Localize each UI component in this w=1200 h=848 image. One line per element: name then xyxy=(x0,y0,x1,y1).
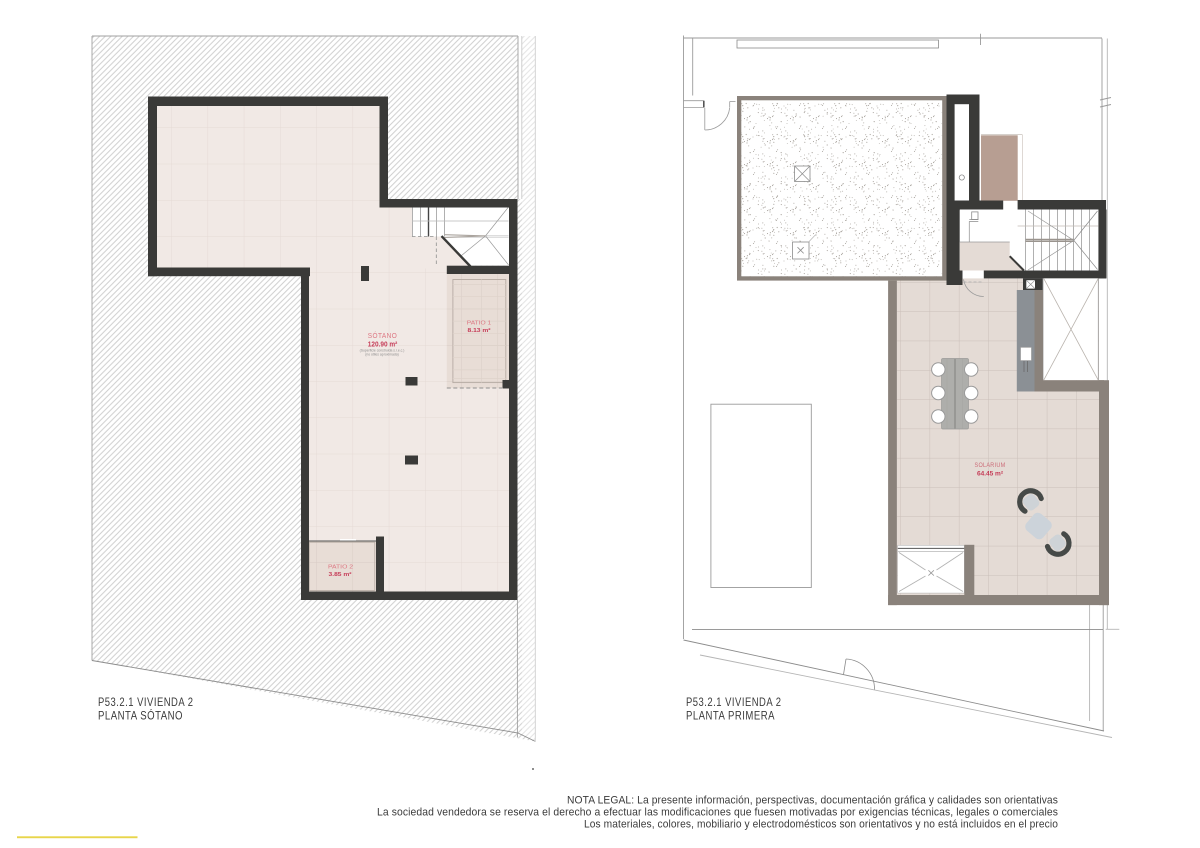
svg-text:(no útiles aproximada): (no útiles aproximada) xyxy=(365,352,399,356)
svg-text:P53.2.1 VIVIENDA 2: P53.2.1 VIVIENDA 2 xyxy=(98,697,194,709)
svg-text:PLANTA PRIMERA: PLANTA PRIMERA xyxy=(686,711,775,723)
svg-text:8.13 m²: 8.13 m² xyxy=(468,327,491,334)
svg-text:PLANTA SÓTANO: PLANTA SÓTANO xyxy=(98,710,183,723)
svg-text:120.90 m²: 120.90 m² xyxy=(368,341,398,348)
svg-text:La sociedad vendedora se reser: La sociedad vendedora se reserva el dere… xyxy=(377,807,1058,819)
svg-text:PATIO 2: PATIO 2 xyxy=(328,565,353,571)
svg-text:64.45 m²: 64.45 m² xyxy=(977,471,1003,478)
svg-text:P53.2.1 VIVIENDA 2: P53.2.1 VIVIENDA 2 xyxy=(686,697,782,709)
svg-text:3.85 m²: 3.85 m² xyxy=(329,571,352,578)
svg-text:Los materiales, colores, mobil: Los materiales, colores, mobiliario y el… xyxy=(584,819,1058,831)
svg-text:SÓTANO: SÓTANO xyxy=(368,331,398,340)
svg-text:SOLARIUM: SOLARIUM xyxy=(975,463,1006,469)
svg-text:NOTA LEGAL: La presente inform: NOTA LEGAL: La presente información, per… xyxy=(567,795,1058,807)
svg-text:PATIO 1: PATIO 1 xyxy=(467,321,492,327)
